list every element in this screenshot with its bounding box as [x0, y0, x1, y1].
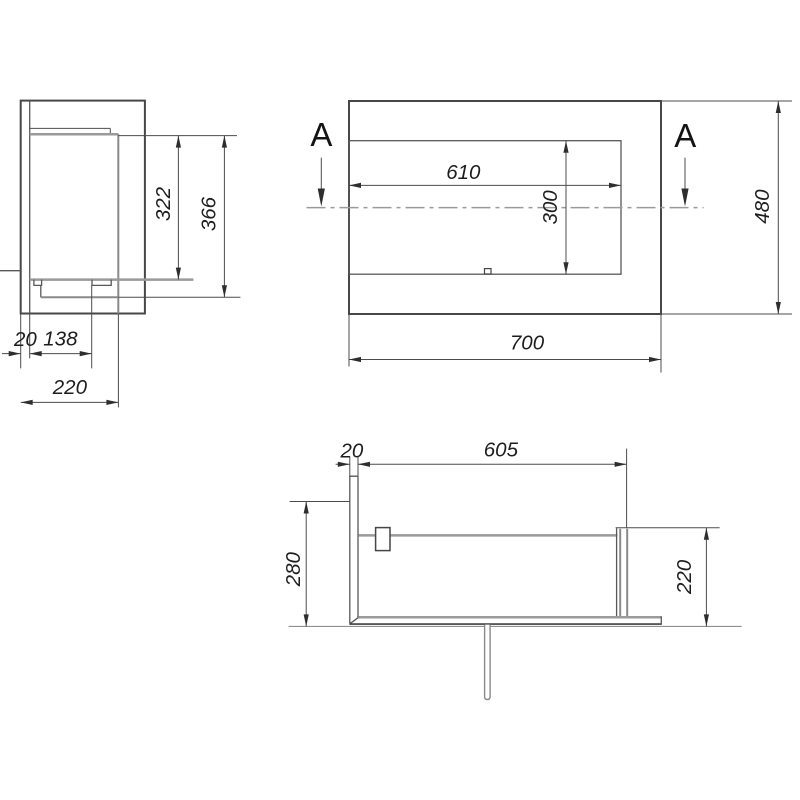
front-view-extension-lines — [349, 101, 792, 373]
arrowhead — [222, 285, 227, 297]
arrowhead — [222, 136, 227, 148]
arrowhead — [304, 502, 309, 514]
section-left-wall — [349, 476, 358, 623]
dim-label-burner-offset: 138 — [43, 328, 78, 351]
arrowhead — [776, 101, 781, 113]
side-view-outer-body — [21, 101, 145, 314]
section-left-wall-chamfer — [350, 617, 359, 624]
dim-label-overall-width: 700 — [510, 332, 545, 355]
side-view: 322 366 20 138 220 — [0, 101, 240, 408]
arrowhead — [704, 528, 709, 540]
dim-label-inner-depth: 220 — [673, 559, 696, 595]
section-label-left: A — [310, 116, 332, 153]
dim-label-inner-height: 366 — [198, 196, 221, 231]
dim-label-overall-depth: 280 — [282, 552, 305, 588]
arrowhead — [80, 351, 92, 356]
arrowhead — [704, 614, 709, 626]
section-label-right: A — [674, 117, 696, 154]
front-view-burner-notch — [485, 269, 492, 274]
dim-label-section-wall-thickness: 20 — [339, 439, 363, 462]
arrowhead — [358, 462, 370, 467]
section-arrowhead-right — [681, 189, 688, 207]
dim-label-depth: 220 — [52, 376, 88, 399]
technical-drawing-canvas: 322 366 20 138 220 A A 610 3 — [0, 0, 800, 800]
section-drain-pin — [485, 625, 491, 700]
arrowhead — [106, 400, 118, 405]
dim-label-firebox-height: 322 — [152, 186, 175, 221]
section-arrowhead-left — [318, 189, 325, 207]
section-view: 20 605 280 220 — [282, 438, 741, 699]
dim-label-overall-height: 480 — [751, 189, 774, 224]
arrowhead — [349, 183, 361, 188]
arrowhead — [9, 351, 21, 356]
arrowhead — [176, 136, 181, 148]
arrowhead — [21, 400, 33, 405]
arrowhead — [776, 302, 781, 314]
dim-label-wall-thickness: 20 — [13, 328, 37, 351]
arrowhead — [176, 268, 181, 280]
arrowhead — [563, 262, 568, 274]
dim-label-inner-width: 605 — [484, 438, 519, 461]
arrowhead — [649, 357, 661, 362]
dim-label-opening-width: 610 — [446, 161, 481, 184]
dim-label-opening-height: 300 — [539, 190, 562, 225]
fireplace-technical-drawing: 322 366 20 138 220 A A 610 3 — [0, 0, 800, 800]
section-right-wall-panels — [620, 529, 627, 617]
section-burner-bracket — [376, 528, 390, 551]
arrowhead — [30, 351, 42, 356]
arrowhead — [304, 614, 309, 626]
arrowhead — [615, 462, 627, 467]
arrowhead — [563, 141, 568, 153]
arrowhead — [349, 357, 361, 362]
front-view: A A 610 300 700 480 — [307, 101, 793, 373]
arrowhead — [338, 462, 350, 467]
arrowhead — [609, 183, 621, 188]
